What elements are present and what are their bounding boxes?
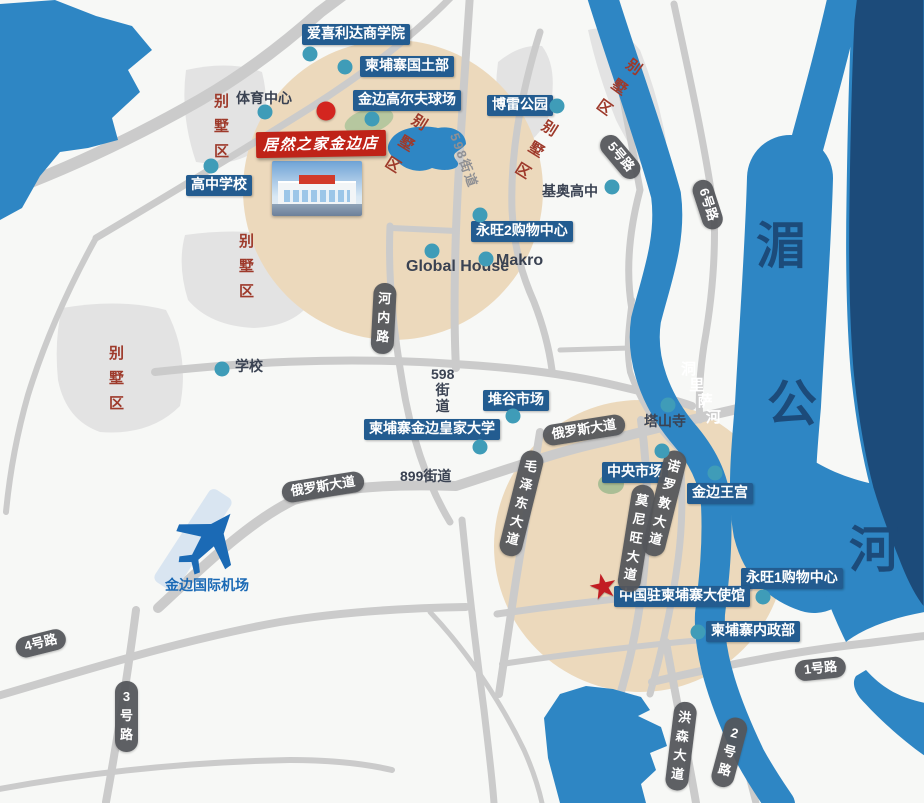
poi-dot-marker[interactable] xyxy=(215,362,230,377)
poi-label[interactable]: 永旺2购物中心 xyxy=(471,221,573,242)
poi-label[interactable]: 金边王宫 xyxy=(687,483,753,504)
poi-dot-marker[interactable] xyxy=(365,112,380,127)
poi-dot-marker[interactable] xyxy=(605,180,620,195)
poi-label[interactable]: 柬埔寨国土部 xyxy=(360,56,454,77)
poi-dot-marker[interactable] xyxy=(479,252,494,267)
district-label: 别墅区 xyxy=(379,108,433,180)
road-pill: 5号路 xyxy=(596,131,645,183)
photo-ground xyxy=(272,204,362,216)
road-pill: 6号路 xyxy=(690,177,725,232)
place-label: 899街道 xyxy=(400,466,451,486)
road-pill: 河内路 xyxy=(370,282,397,354)
poi-dot-marker[interactable] xyxy=(338,60,353,75)
poi-dot-marker[interactable] xyxy=(303,47,318,62)
district-label: 别墅区 xyxy=(590,53,647,123)
road-pill: 2号路 xyxy=(709,715,749,789)
poi-dot-marker[interactable] xyxy=(661,398,676,413)
place-label: Global House xyxy=(406,258,509,276)
road-pill: 俄罗斯大道 xyxy=(541,413,626,446)
mekong-river-char: 河 xyxy=(849,525,899,575)
poi-dot-marker[interactable] xyxy=(258,105,273,120)
poi-dot-marker[interactable] xyxy=(473,208,488,223)
poi-dot-marker[interactable] xyxy=(655,444,670,459)
district-label: 别墅区 xyxy=(213,90,230,164)
store-photo xyxy=(272,161,362,216)
district-label: 别墅区 xyxy=(509,114,563,186)
poi-dot-marker[interactable] xyxy=(425,244,440,259)
road-pill: 毛泽东大道 xyxy=(497,448,545,559)
poi-dot-marker[interactable] xyxy=(708,466,723,481)
river-name-char: 洞 xyxy=(681,362,696,377)
place-label: 塔山寺 xyxy=(644,411,686,431)
place-label: 基奥高中 xyxy=(542,181,598,201)
district-label: 别墅区 xyxy=(108,342,125,416)
poi-dot-marker[interactable] xyxy=(756,590,771,605)
embassy-star-marker[interactable]: ★ xyxy=(585,567,622,607)
district-label: 别墅区 xyxy=(238,230,255,304)
poi-label[interactable]: 高中学校 xyxy=(186,175,252,196)
river-name-char: 河 xyxy=(706,410,721,425)
mekong-river-char: 公 xyxy=(767,379,817,429)
poi-label[interactable]: 爱喜利达商学院 xyxy=(302,24,410,45)
poi-dot-marker[interactable] xyxy=(506,409,521,424)
store-dot-marker[interactable] xyxy=(317,102,336,121)
river-name-char: 里 xyxy=(689,378,704,393)
place-label: Makro xyxy=(496,252,543,270)
road-pill: 俄罗斯大道 xyxy=(280,470,365,503)
street-name: 598街道 xyxy=(446,130,484,191)
poi-label[interactable]: 柬埔寨内政部 xyxy=(706,621,800,642)
photo-glass-front xyxy=(284,190,351,202)
road-pill: 3号路 xyxy=(115,681,138,752)
poi-dot-marker[interactable] xyxy=(204,159,219,174)
road-pill: 4号路 xyxy=(14,627,69,659)
road-pill: 洪森大道 xyxy=(664,701,698,793)
poi-label[interactable]: 永旺1购物中心 xyxy=(741,568,843,589)
poi-label[interactable]: 博雷公园 xyxy=(487,95,553,116)
poi-dot-marker[interactable] xyxy=(550,99,565,114)
river-name-char: 萨 xyxy=(698,394,713,409)
road-pill: 1号路 xyxy=(794,656,847,682)
poi-label[interactable]: 金边高尔夫球场 xyxy=(353,90,461,111)
poi-label[interactable]: 堆谷市场 xyxy=(483,390,549,411)
store-label[interactable]: 居然之家金边店 xyxy=(256,130,386,158)
photo-red-sign xyxy=(299,175,335,184)
poi-label[interactable]: 柬埔寨金边皇家大学 xyxy=(364,419,500,440)
street-name: 598街道 xyxy=(431,366,454,414)
mekong-river-char: 湄 xyxy=(756,221,806,271)
airport-label: 金边国际机场 xyxy=(165,575,249,595)
place-label: 学校 xyxy=(235,356,263,376)
poi-dot-marker[interactable] xyxy=(691,625,706,640)
map-canvas[interactable]: 爱喜利达商学院柬埔寨国土部金边高尔夫球场博雷公园高中学校永旺2购物中心堆谷市场柬… xyxy=(0,0,924,803)
poi-dot-marker[interactable] xyxy=(473,440,488,455)
